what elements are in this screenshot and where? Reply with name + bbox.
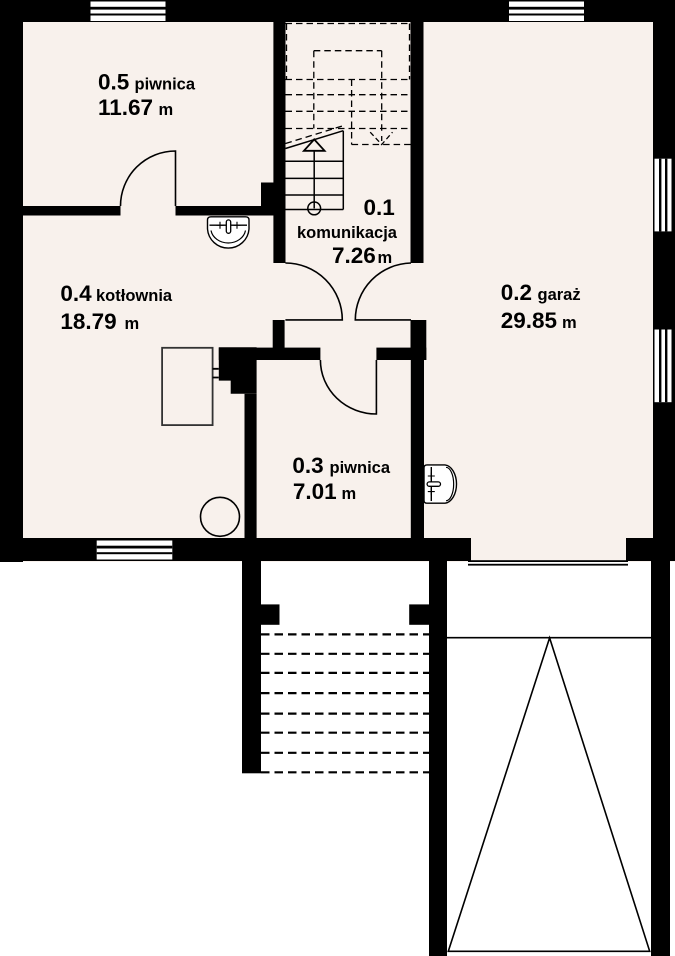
- svg-text:piwnica: piwnica: [135, 75, 196, 93]
- svg-text:garaż: garaż: [538, 286, 581, 304]
- svg-text:18.79: 18.79: [60, 309, 116, 334]
- svg-text:kotłownia: kotłownia: [96, 287, 173, 305]
- svg-text:0.3: 0.3: [292, 453, 323, 478]
- svg-text:0.1: 0.1: [364, 195, 395, 220]
- svg-text:0.4: 0.4: [60, 281, 92, 306]
- svg-text:piwnica: piwnica: [330, 459, 391, 477]
- svg-text:m: m: [378, 249, 393, 267]
- svg-text:0.2: 0.2: [501, 280, 532, 305]
- svg-text:m: m: [159, 101, 174, 119]
- svg-text:11.67: 11.67: [98, 95, 153, 120]
- svg-text:0.5: 0.5: [98, 69, 129, 94]
- svg-text:m: m: [342, 485, 357, 503]
- svg-text:m: m: [562, 314, 577, 332]
- svg-text:komunikacja: komunikacja: [297, 224, 398, 242]
- svg-text:m: m: [125, 315, 140, 333]
- svg-text:7.01: 7.01: [293, 479, 337, 504]
- svg-text:7.26: 7.26: [332, 243, 376, 268]
- svg-text:29.85: 29.85: [501, 308, 557, 333]
